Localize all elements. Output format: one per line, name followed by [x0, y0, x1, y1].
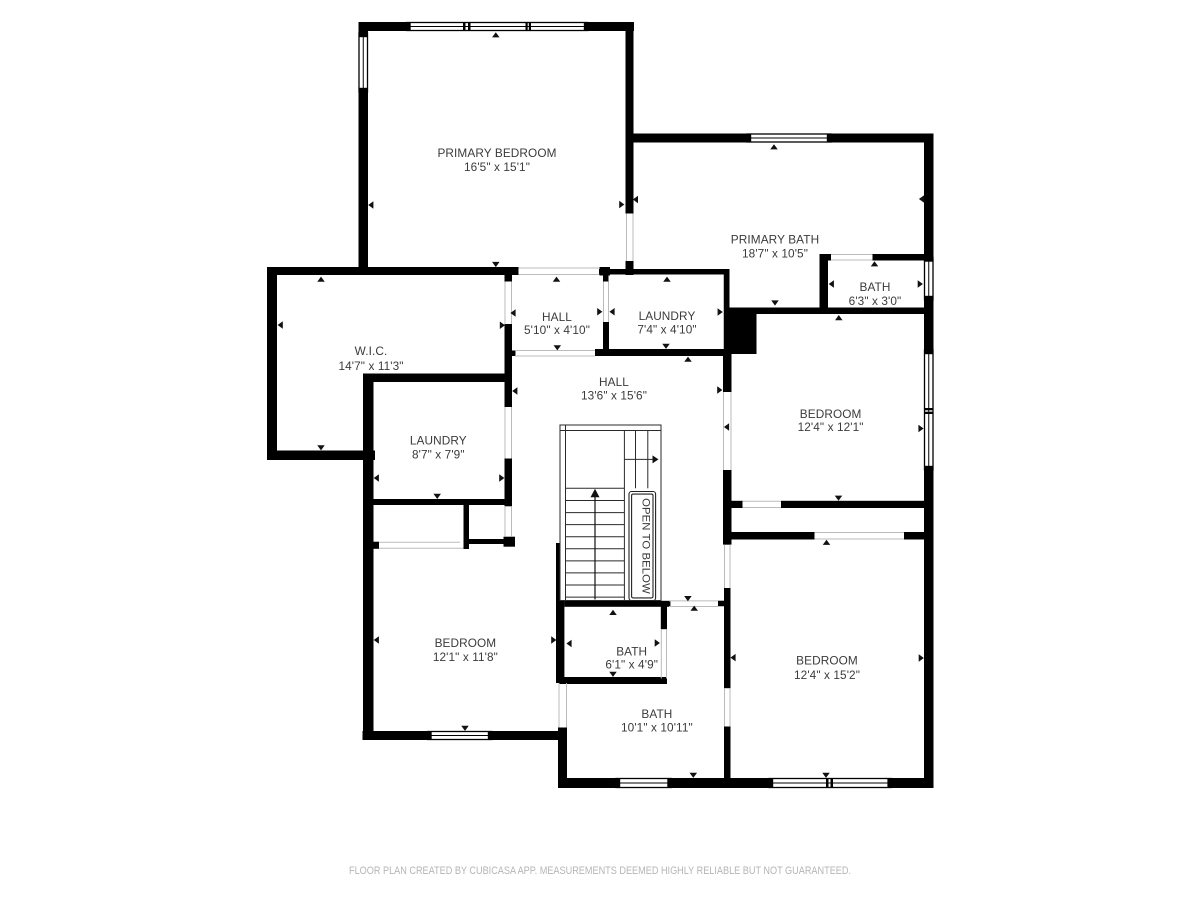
svg-text:BEDROOM: BEDROOM [800, 407, 862, 421]
svg-text:PRIMARY BATH: PRIMARY BATH [731, 233, 819, 247]
svg-text:BEDROOM: BEDROOM [435, 636, 497, 650]
svg-text:BATH: BATH [616, 645, 647, 659]
svg-text:13'6" x 15'6": 13'6" x 15'6" [581, 388, 647, 402]
svg-text:PRIMARY BEDROOM: PRIMARY BEDROOM [437, 146, 556, 160]
svg-text:12'1" x 11'8": 12'1" x 11'8" [433, 650, 498, 664]
svg-text:BATH: BATH [860, 280, 891, 294]
svg-text:BEDROOM: BEDROOM [796, 654, 858, 668]
svg-text:8'7" x 7'9": 8'7" x 7'9" [412, 448, 465, 462]
svg-text:12'4" x 15'2": 12'4" x 15'2" [794, 668, 860, 682]
svg-text:16'5" x 15'1": 16'5" x 15'1" [464, 160, 530, 174]
svg-text:12'4" x 12'1": 12'4" x 12'1" [798, 420, 864, 434]
svg-text:W.I.C.: W.I.C. [355, 344, 388, 358]
svg-text:7'4" x 4'10": 7'4" x 4'10" [637, 322, 696, 336]
svg-text:OPEN TO BELOW: OPEN TO BELOW [639, 498, 651, 594]
svg-text:6'3" x 3'0": 6'3" x 3'0" [849, 294, 902, 308]
svg-text:FLOOR PLAN CREATED BY CUBICASA: FLOOR PLAN CREATED BY CUBICASA APP. MEAS… [349, 865, 851, 877]
svg-text:6'1" x 4'9": 6'1" x 4'9" [605, 658, 658, 672]
svg-text:LAUNDRY: LAUNDRY [639, 309, 696, 323]
svg-text:14'7" x 11'3": 14'7" x 11'3" [338, 359, 403, 373]
svg-text:LAUNDRY: LAUNDRY [410, 434, 467, 448]
svg-text:HALL: HALL [599, 375, 629, 389]
svg-text:5'10" x 4'10": 5'10" x 4'10" [524, 323, 590, 337]
svg-text:HALL: HALL [542, 310, 572, 324]
svg-text:18'7" x 10'5": 18'7" x 10'5" [742, 247, 808, 261]
svg-text:10'1" x 10'11": 10'1" x 10'11" [621, 720, 693, 734]
svg-text:BATH: BATH [641, 707, 672, 721]
